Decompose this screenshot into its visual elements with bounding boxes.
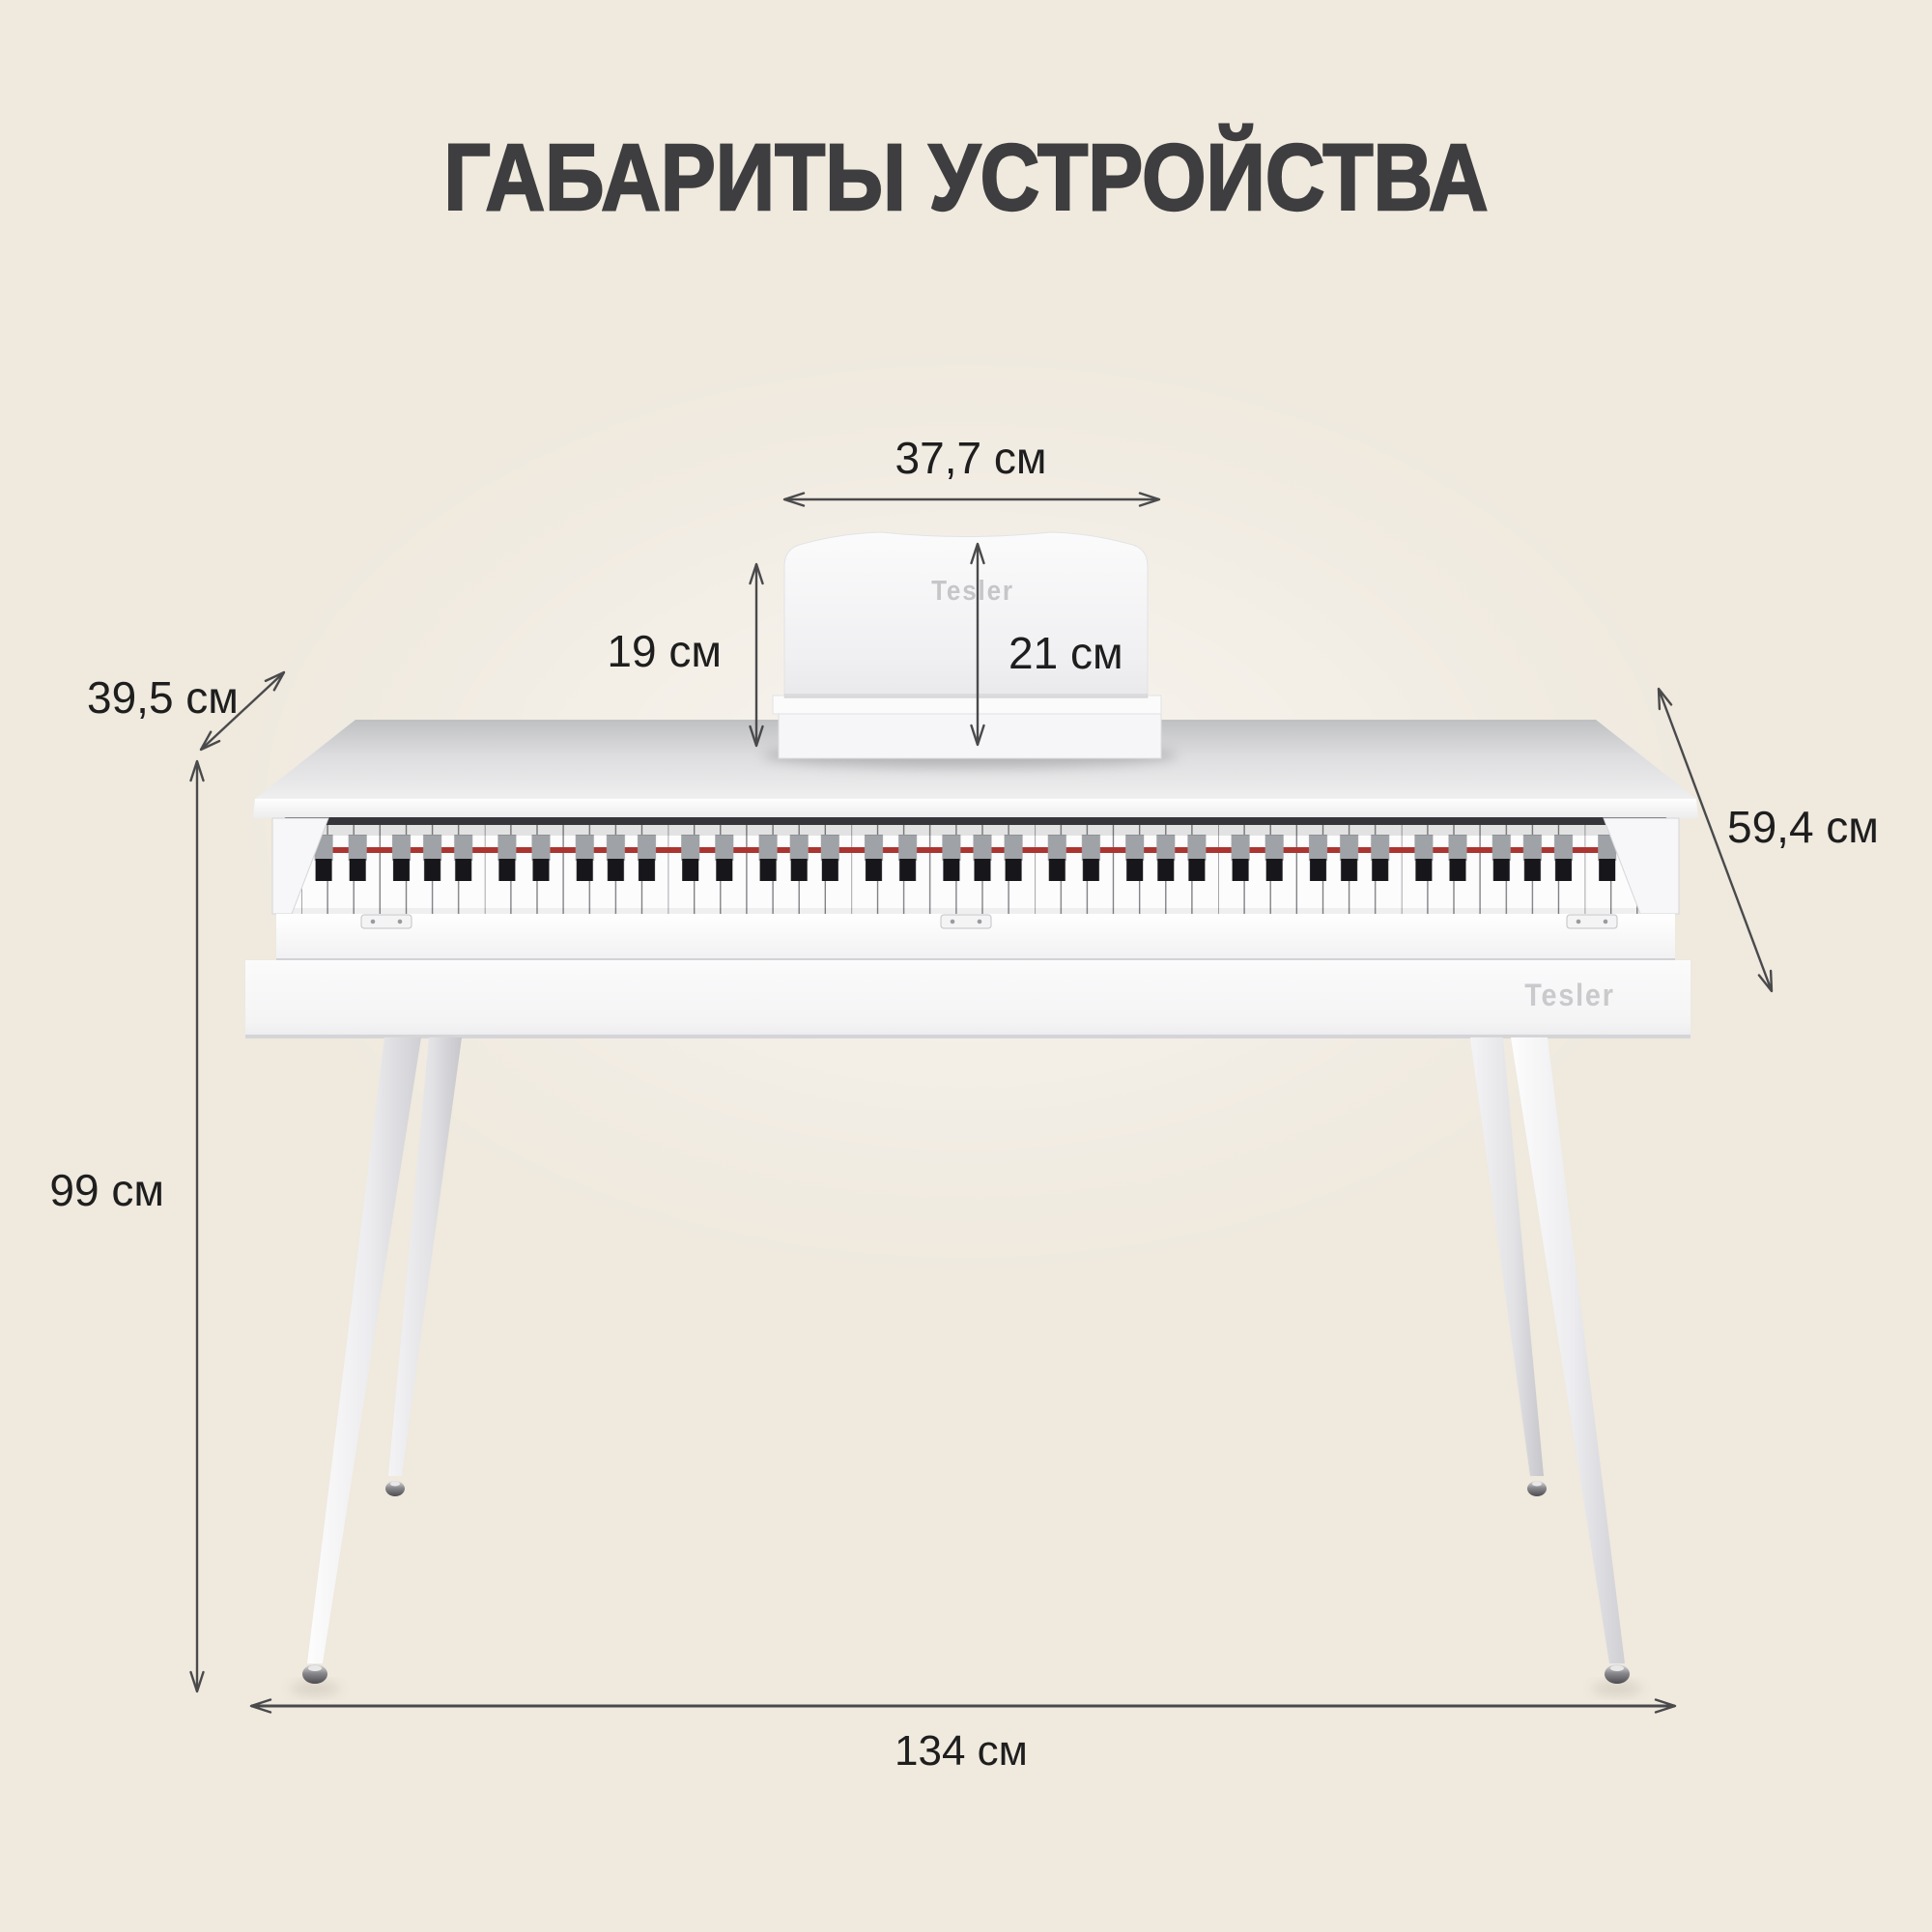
hinge [361,915,412,928]
back-left-foot [385,1481,405,1496]
page-title: ГАБАРИТЫ УСТРОЙСТВА [116,124,1816,232]
front-left-foot [302,1664,327,1684]
front-rail [276,914,1675,960]
piano [245,532,1698,1694]
stand-brand-logo: Tesler [925,576,1021,608]
stand-width-label: 37,7 см [821,433,1121,484]
side-height-label: 59,4 см [1727,802,1879,853]
hinge [1567,915,1617,928]
dimensions-infographic: ГАБАРИТЫ УСТРОЙСТВА 37,7 см 19 см 21 см … [0,0,1932,1932]
key-slot [284,817,1667,826]
piano-body [245,960,1690,1038]
back-right-foot [1527,1481,1547,1496]
keyboard [272,818,1679,914]
width-label: 134 см [816,1727,1106,1776]
stand-height-left-label: 19 см [536,626,722,677]
depth-label: 39,5 см [87,672,239,724]
piano-legs [290,1037,1642,1694]
height-label: 99 см [19,1165,164,1216]
body-brand-logo: Tesler [1514,978,1627,1013]
stand-height-right-label: 21 см [1009,628,1123,679]
piano-illustration [0,0,1932,1932]
hinge [941,915,991,928]
front-right-foot [1605,1664,1630,1684]
stand-base [779,712,1161,758]
